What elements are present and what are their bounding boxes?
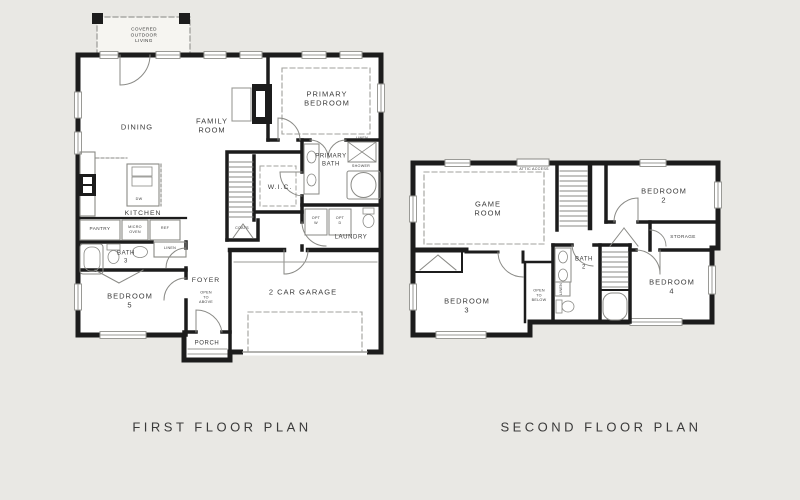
label-porch: PORCH — [195, 340, 220, 348]
label-opt-washer: OPT W — [312, 216, 320, 225]
label-bath-3: BATH 3 — [117, 251, 135, 266]
label-primary-bath: PRIMARY BATH — [315, 154, 346, 169]
label-family-room: FAMILY ROOM — [196, 117, 228, 136]
label-game-room: GAME ROOM — [474, 200, 501, 219]
label-garage: 2 CAR GARAGE — [269, 287, 337, 296]
label-storage: STORAGE — [670, 235, 696, 241]
label-laundry: LAUNDRY — [335, 234, 368, 242]
label-covered-outdoor-living: COVERED OUTDOOR LIVING — [131, 27, 158, 45]
first-floor-caption: FIRST FLOOR PLAN — [132, 420, 311, 435]
second-floor-caption: SECOND FLOOR PLAN — [500, 420, 701, 435]
label-micro-oven: MICRO OVEN — [128, 225, 142, 234]
label-pantry: PANTRY — [90, 227, 111, 233]
label-bedroom-2: BEDROOM 2 — [641, 187, 687, 206]
attic-access-hatch — [517, 159, 549, 166]
label-shower: SHOWER — [352, 165, 370, 170]
label-linen-closet: LINEN — [356, 137, 368, 142]
label-open-to-above: OPEN TO ABOVE — [199, 291, 213, 305]
label-dining: DINING — [121, 122, 153, 131]
label-linen-hall: LINEN — [164, 247, 176, 252]
label-open-to-below: OPEN TO BELOW — [532, 289, 547, 303]
label-wic: W.I.C. — [268, 184, 293, 192]
label-bath-2: BATH 2 — [575, 257, 593, 272]
floor-plan-image: COVERED OUTDOOR LIVING DINING FAMILY ROO… — [0, 0, 800, 500]
label-attic-access: ATTIC ACCESS — [519, 168, 549, 173]
label-foyer: FOYER — [192, 277, 220, 285]
label-kitchen: KITCHEN — [125, 210, 162, 218]
label-dishwasher: DW — [136, 198, 143, 203]
label-refrigerator: REF — [161, 227, 169, 232]
label-opt-dryer: OPT D — [336, 216, 344, 225]
label-linen-2: LINEN — [560, 283, 565, 295]
label-bedroom-4: BEDROOM 4 — [649, 278, 695, 297]
label-coats: COATS — [235, 227, 249, 232]
label-bedroom-5: BEDROOM 5 — [107, 292, 153, 311]
label-primary-bedroom: PRIMARY BEDROOM — [304, 90, 350, 109]
label-bedroom-3: BEDROOM 3 — [444, 297, 490, 316]
